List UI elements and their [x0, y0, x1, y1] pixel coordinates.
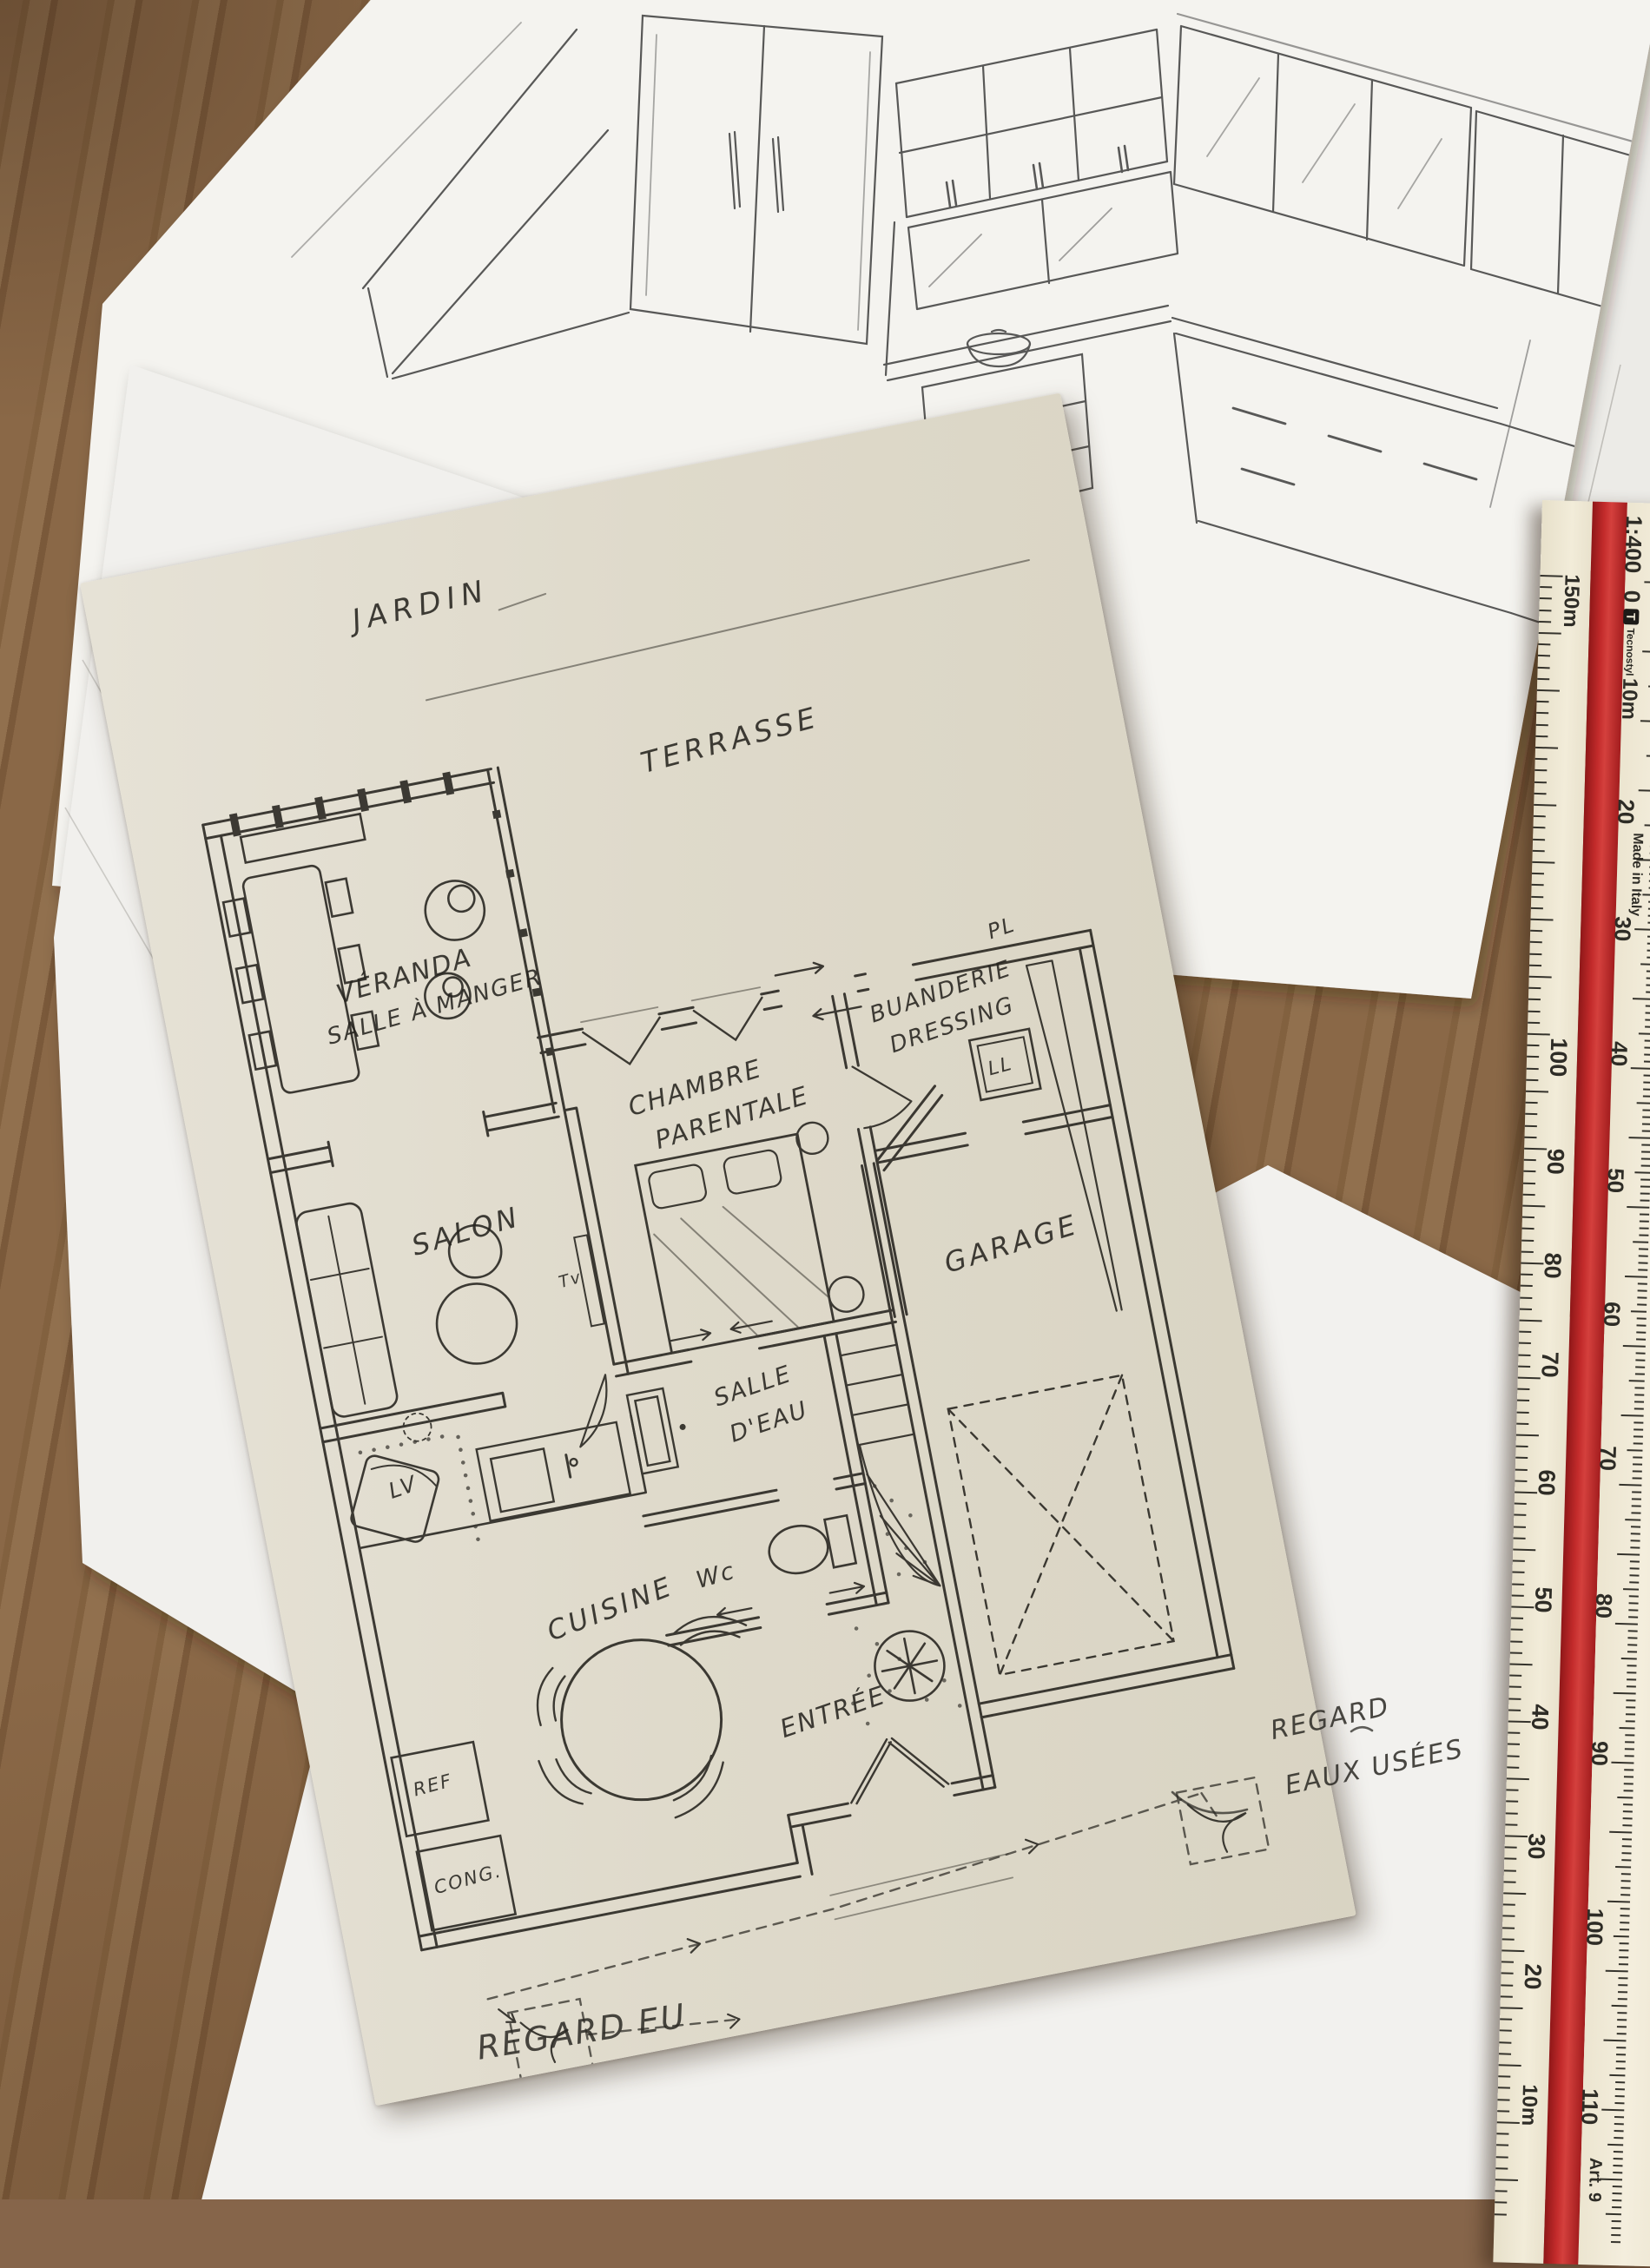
ruler-tick: [1639, 789, 1650, 792]
toilet-fixture: [765, 1515, 856, 1579]
ruler-tick: [1521, 1285, 1533, 1287]
ruler-tick: [1529, 953, 1541, 954]
ruler-tick: [1619, 1963, 1628, 1965]
ruler-tick: [1633, 1442, 1643, 1444]
ruler-tick: [1641, 1157, 1650, 1159]
ruler-tick: [1513, 1560, 1525, 1562]
ruler-tick: [1616, 2054, 1626, 2055]
ruler-tick: [1627, 1678, 1636, 1680]
ruler-tick: [1618, 1991, 1627, 1993]
ruler-tick: [1514, 1537, 1526, 1539]
ruler-tick: [1634, 1387, 1644, 1388]
ruler-tick: [1502, 1915, 1515, 1917]
ruler-tick: [1537, 678, 1549, 680]
ruler-tick: [1613, 2172, 1622, 2173]
ruler-tick: [1625, 1741, 1634, 1743]
ruler-tick: [1631, 1310, 1647, 1313]
ruler-tick: [1498, 2075, 1510, 2077]
ruler-tick: [1534, 793, 1547, 794]
ruler-tick: [1512, 1594, 1524, 1596]
ruler-tick: [1526, 1079, 1538, 1081]
ruler-tick: [1636, 1338, 1646, 1340]
ruler-tick: [1647, 971, 1650, 972]
ruler-tick: [1633, 998, 1650, 1000]
ruler-left-number: 90: [1541, 1148, 1569, 1175]
ruler-tick: [1623, 1588, 1639, 1591]
ruler-tick: [1505, 1847, 1517, 1849]
ruler-tick: [1618, 1998, 1627, 2000]
ruler-tick: [1522, 1228, 1534, 1230]
ruler-tick: [1632, 1491, 1641, 1493]
ruler-tick: [1531, 895, 1543, 897]
ruler-tick: [1528, 987, 1541, 989]
ruler-tick: [1640, 720, 1650, 722]
ruler-left-number: 80: [1538, 1252, 1566, 1279]
ruler-tick: [1607, 2144, 1623, 2146]
ruler-tick: [1642, 1130, 1650, 1131]
ruler-tick: [1495, 2179, 1518, 2181]
ruler-tick: [1502, 1927, 1515, 1928]
ruler-tick: [1531, 907, 1543, 909]
ruler-tick: [1640, 963, 1650, 966]
ruler-tick: [1534, 804, 1556, 807]
ruler-tick: [1614, 2116, 1624, 2118]
ruler-tick: [1511, 1629, 1523, 1631]
ruler-tick: [1606, 1970, 1628, 1973]
ruler-tick: [1538, 667, 1550, 669]
ruler-tick: [1528, 1033, 1550, 1036]
ruler-tick: [1506, 1790, 1518, 1791]
ruler-tick: [1638, 1269, 1647, 1270]
ruler-tick: [1498, 2099, 1510, 2100]
ruler-tick: [1523, 1182, 1535, 1183]
ruler-tick: [1631, 1067, 1650, 1070]
ruler-tick: [1521, 1250, 1534, 1252]
ruler-left-number: 50: [1529, 1586, 1557, 1613]
ruler-tick: [1499, 2041, 1511, 2043]
ruler-tick: [1626, 1713, 1635, 1715]
ruler-tick: [1614, 2158, 1623, 2159]
ruler-tick: [1645, 1019, 1650, 1021]
ruler-tick: [1617, 2026, 1627, 2027]
ruler-tick: [1498, 2087, 1510, 2089]
ruler-tick: [1640, 1178, 1650, 1180]
ruler-tick: [1625, 1748, 1634, 1750]
ruler-tick: [1622, 1838, 1632, 1840]
ruler-tick: [1629, 1574, 1639, 1576]
ruler-tick: [1614, 2123, 1624, 2125]
ruler-tick: [1510, 1663, 1533, 1665]
ruler-tick: [1631, 1533, 1640, 1534]
ruler-tick: [1646, 1012, 1650, 1014]
ruler-tick: [1508, 1709, 1521, 1711]
ruler-tick: [1534, 781, 1547, 782]
ruler-tick: [1538, 655, 1550, 656]
ruler-tick: [1527, 1067, 1539, 1069]
ruler-tick: [1620, 1915, 1629, 1916]
ruler-tick: [1521, 1239, 1534, 1241]
ruler-right-number: 80: [1590, 1593, 1618, 1619]
ruler-tick: [1629, 1581, 1639, 1583]
ruler-tick: [1642, 893, 1650, 896]
ruler-tick: [1523, 1170, 1535, 1172]
ruler-tick: [1626, 1720, 1635, 1722]
ruler-tick: [1627, 1206, 1649, 1209]
ruler-tick: [1638, 1282, 1647, 1284]
ruler-tick: [1514, 1514, 1526, 1516]
ruler-tick: [1507, 1777, 1529, 1780]
ruler-right-number: 0: [1618, 590, 1645, 603]
ruler-tick: [1496, 2156, 1508, 2158]
ruler-tick: [1628, 1616, 1638, 1618]
ruler-tick: [1528, 1010, 1541, 1012]
ruler-tick: [1504, 1869, 1516, 1871]
ruler-tick: [1639, 1234, 1648, 1236]
ruler-right-number: 110: [1575, 2088, 1603, 2126]
ruler-tick: [1539, 621, 1551, 623]
ruler-tick: [1641, 1150, 1650, 1152]
ruler-tick: [1624, 1776, 1633, 1777]
ruler-right-number: 70: [1594, 1446, 1621, 1472]
ruler-tick: [1640, 1220, 1649, 1222]
ruler-tick: [1646, 985, 1650, 986]
ruler-tick: [1620, 1894, 1630, 1895]
ruler-tick: [1634, 928, 1650, 931]
ruler-tick: [1617, 2019, 1627, 2021]
ruler-tick: [1606, 2213, 1621, 2216]
ruler-left-number: 100: [1544, 1038, 1572, 1078]
ruler-tick: [1645, 1040, 1650, 1042]
ruler-tick: [1523, 1193, 1535, 1195]
ruler-tick: [1633, 1463, 1642, 1465]
ruler-tick: [1495, 2167, 1508, 2169]
ruler-tick: [1532, 884, 1544, 886]
ruler-tick: [1517, 1400, 1529, 1401]
ruler-tick: [1536, 701, 1548, 702]
ruler-tick: [1614, 2137, 1623, 2139]
ruler-tick: [1508, 1698, 1521, 1699]
ruler-tick: [1642, 1116, 1650, 1118]
ruler-tick: [1516, 1422, 1528, 1424]
ruler-right-number: 60: [1598, 1302, 1626, 1328]
ruler-tick: [1644, 1075, 1650, 1077]
ruler-tick: [1630, 1560, 1640, 1562]
ruler-tick: [1634, 1171, 1650, 1174]
ruler-tick: [1645, 824, 1650, 827]
ruler-tick: [1647, 950, 1650, 952]
ruler-tick: [1620, 1727, 1635, 1730]
ruler-tick: [1632, 1505, 1641, 1507]
ruler-tick: [1535, 735, 1548, 737]
ruler-tick: [1646, 992, 1650, 993]
ruler-tick: [1631, 1512, 1640, 1513]
ruler-tick: [1614, 2130, 1624, 2132]
ruler-tick: [1647, 957, 1650, 959]
ruler-tick: [1615, 2088, 1625, 2090]
ruler-tick: [1640, 1192, 1650, 1194]
ruler-tick: [1618, 1984, 1627, 1986]
ruler-tick: [1639, 1248, 1648, 1249]
ruler-tick: [1621, 1658, 1637, 1660]
ruler-tick: [1635, 1359, 1645, 1361]
ruler-tick: [1629, 1380, 1645, 1382]
ruler-tick: [1643, 1096, 1650, 1098]
ruler-tick: [1633, 1241, 1648, 1243]
ruler-tick: [1620, 1942, 1629, 1944]
ruler-tick: [1613, 2186, 1622, 2187]
ruler-tick: [1522, 1205, 1545, 1208]
ruler-tick: [1644, 1047, 1650, 1049]
ruler-tick: [1516, 1434, 1539, 1437]
ruler-tick: [1621, 1880, 1631, 1882]
ruler-tick: [1641, 1144, 1650, 1145]
ruler-tick: [1510, 1640, 1522, 1642]
ruler-tick: [1620, 1887, 1630, 1889]
ruler-tick: [1530, 930, 1542, 932]
ruler-tick: [1520, 1308, 1532, 1309]
ruler-tick: [1636, 1324, 1646, 1326]
ruler-tick: [1615, 1866, 1631, 1869]
ruler-tick: [1612, 2220, 1621, 2222]
ruler-tick: [1647, 755, 1650, 757]
ruler-tick: [1502, 1938, 1515, 1940]
ruler-tick: [1533, 850, 1545, 852]
bed: [636, 1134, 834, 1353]
ruler-tick: [1540, 597, 1552, 599]
ruler-tick: [1628, 1630, 1638, 1632]
ruler-tick: [1612, 2199, 1621, 2201]
ruler-tick: [1613, 2192, 1622, 2194]
ruler-tick: [1645, 1026, 1650, 1028]
ruler-tick: [1504, 1858, 1516, 1860]
ruler-tick: [1644, 1061, 1650, 1063]
ruler-tick: [1509, 1675, 1521, 1677]
ruler-tick: [1525, 1124, 1537, 1126]
ruler-tick: [1536, 723, 1548, 725]
ruler-tick: [1511, 1618, 1523, 1619]
ruler-tick: [1633, 1428, 1643, 1430]
ruler-tick: [1640, 1185, 1650, 1187]
ruler-tick: [1515, 1503, 1527, 1505]
ruler-tick: [1538, 643, 1550, 645]
ruler-right-number: 100: [1581, 1908, 1608, 1946]
ruler-tick: [1623, 1817, 1633, 1819]
ruler-tick: [1625, 1519, 1640, 1521]
ruler-tick: [1633, 1421, 1643, 1423]
ruler-tick: [1615, 2095, 1625, 2097]
ruler-tick: [1615, 1623, 1638, 1625]
ruler-tick: [1515, 1468, 1528, 1470]
ruler-tick: [1521, 1274, 1533, 1276]
ruler-tick: [1614, 1935, 1629, 1938]
ruler-tick: [1642, 1123, 1650, 1124]
ruler-tick: [1636, 1352, 1646, 1354]
ruler-tick: [1631, 1539, 1640, 1541]
ruler-tick: [1526, 1102, 1538, 1104]
ruler-tick: [1616, 2047, 1626, 2048]
ruler-tick: [1503, 1904, 1515, 1906]
ruler-tick: [1533, 838, 1545, 840]
ruler-tick: [1616, 2060, 1626, 2062]
ruler-tick: [1609, 1831, 1632, 1834]
ruler-tick: [1627, 1665, 1637, 1666]
ruler-tick: [1620, 1928, 1629, 1930]
ruler-tick: [1539, 632, 1561, 635]
ruler-tick: [1638, 1289, 1647, 1291]
ruler-tick: [1629, 1137, 1650, 1139]
ruler-tick: [1618, 1977, 1627, 1979]
ruler-tick: [1644, 1054, 1650, 1056]
shower-fixture: [627, 1386, 693, 1474]
ruler-tick: [1644, 581, 1650, 583]
ruler-tick: [1624, 1790, 1633, 1791]
ruler-tick: [1626, 1706, 1635, 1708]
ruler-tick: [1518, 1354, 1530, 1355]
ruler-tick: [1495, 2213, 1507, 2215]
ruler-tick: [1621, 1859, 1631, 1861]
ruler-tick: [1530, 919, 1553, 921]
ruler-tick: [1537, 689, 1560, 692]
ruler-tick: [1629, 1595, 1639, 1597]
ruler-tick: [1624, 1769, 1633, 1770]
ruler-tick: [1506, 1801, 1518, 1803]
ruler-tick: [1528, 1022, 1540, 1024]
ruler-tick: [1633, 1477, 1642, 1479]
ruler-tick: [1646, 1005, 1650, 1007]
ruler-tick: [1629, 1602, 1639, 1604]
ruler-tick: [1622, 1824, 1632, 1826]
ruler-tick: [1620, 1908, 1630, 1909]
ruler-tick: [1630, 1567, 1640, 1569]
ruler-tick: [1524, 1159, 1536, 1161]
ruler-tick: [1634, 1394, 1644, 1395]
ruler-tick: [1633, 1435, 1643, 1437]
ruler-tick: [1514, 1526, 1526, 1527]
ruler-tick: [1533, 827, 1545, 828]
ruler-tick: [1527, 1045, 1539, 1046]
ruler-left-scale-top: 150m: [1558, 574, 1584, 628]
ruler-tick: [1529, 965, 1541, 966]
ruler-tick: [1619, 1484, 1641, 1487]
ruler-tick: [1509, 1686, 1521, 1688]
ruler-tick: [1636, 1331, 1646, 1333]
ruler-tick: [1524, 1137, 1536, 1138]
ruler-right-number: 50: [1601, 1168, 1629, 1194]
ruler-tick: [1525, 1113, 1537, 1115]
ruler-tick: [1640, 1227, 1649, 1229]
ruler-right-number: 10m: [1616, 677, 1641, 720]
ruler-tick: [1522, 1216, 1534, 1218]
ruler-right-number: 30: [1608, 916, 1636, 942]
ruler-tick: [1536, 712, 1548, 714]
ruler-tick: [1641, 1164, 1650, 1166]
ruler-tick: [1507, 1766, 1519, 1768]
ruler-tick: [1623, 1810, 1633, 1812]
ruler-tick: [1627, 1644, 1637, 1645]
ruler-tick: [1639, 1032, 1650, 1035]
ruler-tick: [1625, 1276, 1647, 1278]
ruler-tick: [1635, 1366, 1645, 1368]
ruler-tick: [1633, 1456, 1642, 1458]
ruler-tick: [1632, 1498, 1641, 1500]
ruler-left-number: 70: [1535, 1351, 1563, 1378]
ruler-tick: [1501, 1973, 1514, 1975]
ruler-tick: [1614, 2102, 1624, 2104]
ruler-tick: [1508, 1744, 1520, 1745]
desk-photo: { "labels": { "jardin": "JARDIN", "terra…: [0, 0, 1650, 2199]
ruler-tick: [1624, 1783, 1633, 1784]
ruler-tick: [1617, 2033, 1627, 2034]
ruler-left-number: 40: [1526, 1704, 1554, 1731]
ruler-tick: [1621, 1414, 1644, 1417]
ruler-tick: [1527, 1056, 1539, 1058]
ruler-tick: [1625, 1755, 1634, 1757]
ruler-tick: [1520, 1320, 1542, 1322]
ruler-tick: [1496, 2133, 1508, 2134]
ruler-tick: [1627, 1651, 1637, 1652]
ruler-tick: [1529, 976, 1552, 979]
ruler-tick: [1637, 1296, 1647, 1298]
ruler-tick: [1500, 2030, 1512, 2032]
ruler-tick: [1635, 1373, 1645, 1375]
ruler-tick: [1614, 2151, 1623, 2153]
ruler-tick: [1519, 1342, 1531, 1344]
ruler-tick: [1617, 1797, 1633, 1799]
ruler-tick: [1512, 1583, 1524, 1585]
ruler-tick: [1603, 2040, 1626, 2042]
ruler-left-number: 20: [1519, 1963, 1547, 1990]
ruler-tick: [1612, 2206, 1621, 2208]
ruler-tick: [1611, 2234, 1620, 2236]
ruler-tick: [1611, 1762, 1633, 1764]
ruler-tick: [1614, 1692, 1636, 1695]
ruler-tick: [1519, 1331, 1531, 1333]
ruler-tick: [1628, 1609, 1638, 1611]
ruler-tick: [1619, 1956, 1628, 1958]
ruler-tick: [1500, 2007, 1522, 2009]
ruler-tick: [1528, 999, 1541, 1000]
ruler-tick: [1637, 1317, 1647, 1319]
ruler-tick: [1503, 1892, 1526, 1895]
ruler-tick: [1639, 1255, 1648, 1256]
ruler-scale-label: 1:400: [1619, 515, 1647, 573]
ruler-tick: [1622, 1852, 1632, 1854]
ruler-tick: [1504, 1881, 1516, 1882]
ruler-tick: [1532, 861, 1554, 864]
ruler-tick: [1515, 1480, 1527, 1481]
ruler-tick: [1506, 1812, 1518, 1814]
ruler-tick: [1643, 1089, 1650, 1091]
ruler-tick: [1637, 1303, 1647, 1305]
ruler-tick: [1611, 2227, 1620, 2229]
ruler-art-number: Art. 9: [1584, 2158, 1605, 2203]
ruler-tick: [1601, 2109, 1624, 2112]
ruler-tick: [1619, 1949, 1628, 1951]
ruler-tick: [1620, 1922, 1629, 1923]
ruler-tick: [1640, 1213, 1649, 1215]
ruler-tick: [1623, 1345, 1646, 1348]
ruler-tick: [1633, 1470, 1642, 1472]
ruler-tick: [1630, 1546, 1640, 1548]
ruler-tick: [1622, 1845, 1632, 1847]
ruler-tick: [1497, 2110, 1509, 2112]
ruler-tick: [1496, 2145, 1508, 2146]
ruler-tick: [1616, 2067, 1626, 2069]
ruler-tick: [1535, 747, 1558, 749]
ruler-tick: [1638, 1262, 1647, 1263]
ruler-right-number: 20: [1612, 799, 1640, 825]
ruler-tick: [1627, 1671, 1636, 1673]
